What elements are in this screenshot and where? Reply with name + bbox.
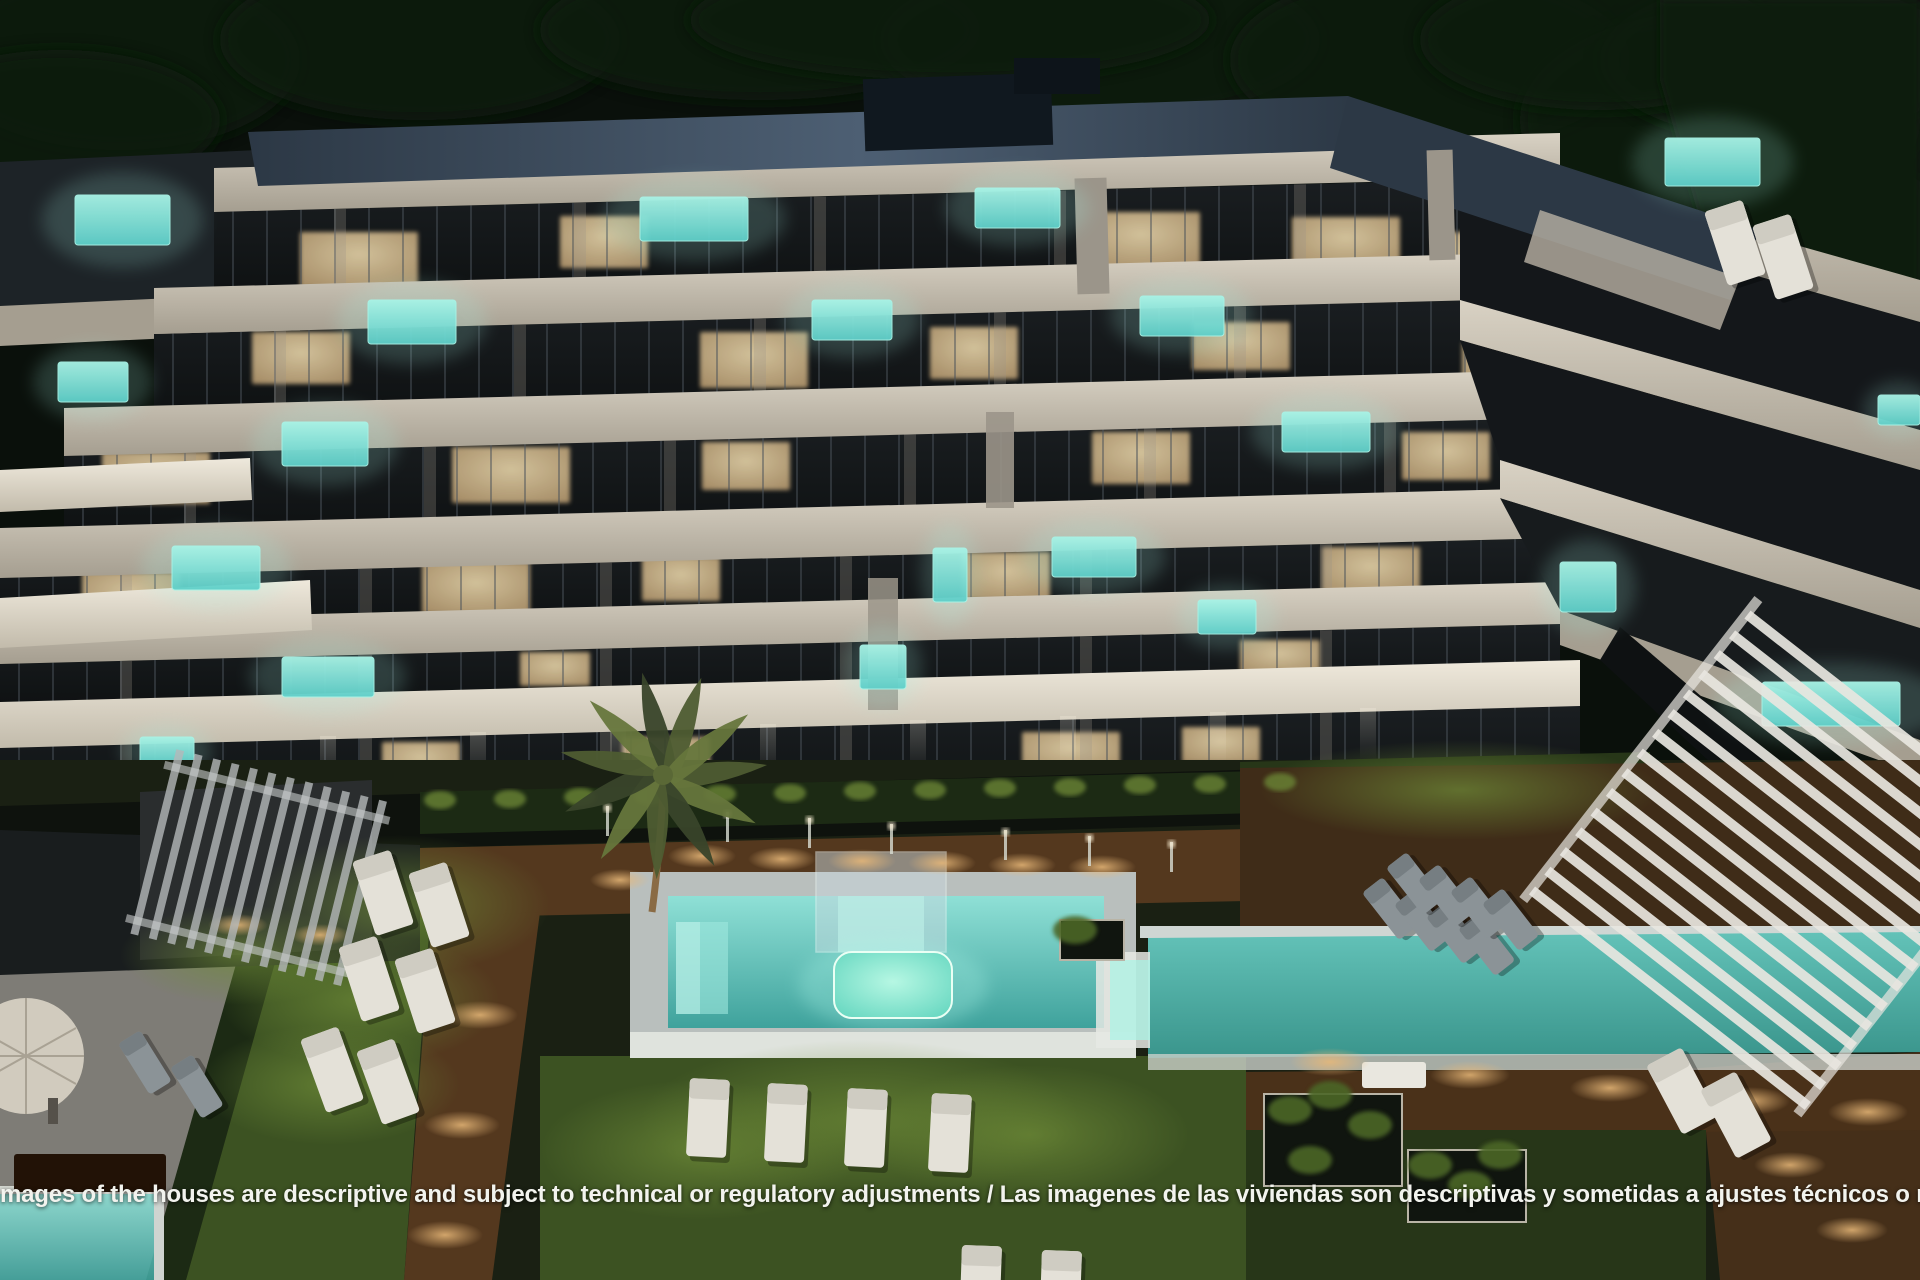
window-mullion: [864, 436, 866, 508]
window-mullion: [266, 211, 268, 287]
window-mullion: [460, 652, 462, 690]
hedge-plant: [844, 782, 876, 800]
window-mullion: [762, 438, 764, 510]
window-mullion: [490, 445, 492, 517]
partition-wall: [1144, 428, 1156, 500]
hedge-plant: [1194, 775, 1226, 793]
sun-lounger: [928, 1093, 976, 1178]
deck-light: [908, 851, 976, 875]
window-mullion: [1310, 630, 1312, 668]
partition-wall: [1294, 184, 1306, 260]
window-mullion: [154, 660, 156, 698]
window-mullion: [460, 566, 462, 610]
window-mullion: [648, 321, 650, 395]
window-mullion: [784, 318, 786, 392]
window-mullion: [1022, 312, 1024, 386]
sun-lounger: [844, 1088, 892, 1173]
hedge-plant: [1054, 778, 1086, 796]
facade-pier: [1427, 150, 1456, 261]
deck-light: [1754, 1152, 1826, 1178]
deck-light: [828, 849, 896, 873]
plunge-pool: [1560, 562, 1616, 612]
partition-wall: [1320, 544, 1332, 588]
deck-light: [290, 924, 350, 946]
window-mullion: [592, 442, 594, 514]
window-mullion: [470, 205, 472, 281]
window-mullion: [1238, 426, 1240, 498]
partition-wall: [514, 325, 526, 399]
window-mullion: [172, 334, 174, 408]
window-mullion: [970, 639, 972, 677]
window-mullion: [1260, 306, 1262, 380]
hedge-plant: [984, 779, 1016, 797]
partition-wall: [120, 661, 132, 699]
window-mullion: [716, 320, 718, 394]
light-post-bulb: [806, 816, 814, 824]
facade-pier: [986, 412, 1014, 508]
lit-window: [520, 652, 590, 686]
planter-plant: [1348, 1111, 1392, 1139]
deck-light: [1828, 1098, 1908, 1126]
window-mullion: [1056, 311, 1058, 385]
window-mullion: [1140, 635, 1142, 673]
jacuzzi: [834, 952, 952, 1018]
architectural-render-page: mages of the houses are descriptive and …: [0, 0, 1920, 1280]
parasol-stand: [48, 1098, 58, 1124]
partition-wall: [574, 203, 586, 279]
planter-plant: [1408, 1151, 1452, 1179]
window-mullion: [596, 563, 598, 607]
window-mullion: [796, 437, 798, 509]
window-mullion: [1208, 547, 1210, 591]
partition-wall: [994, 312, 1006, 386]
window-mullion: [966, 433, 968, 505]
partition-wall: [360, 569, 372, 613]
window-mullion: [1514, 625, 1516, 663]
deck-light: [748, 847, 816, 871]
plunge-pool: [58, 362, 128, 402]
window-mullion: [694, 440, 696, 512]
window-mullion: [308, 330, 310, 404]
lit-window: [642, 557, 720, 601]
window-mullion: [698, 646, 700, 684]
lit-window: [452, 447, 570, 503]
plunge-pool: [1198, 600, 1256, 634]
hedge-plant: [774, 784, 806, 802]
window-mullion: [1034, 431, 1036, 503]
window-mullion: [834, 557, 836, 601]
window-mullion: [630, 648, 632, 686]
disclaimer-text: mages of the houses are descriptive and …: [0, 1180, 1920, 1214]
sun-lounger: [686, 1078, 734, 1163]
deck-light: [1570, 1074, 1650, 1102]
window-mullion: [1174, 634, 1176, 672]
plunge-pool: [75, 195, 170, 245]
window-mullion: [528, 564, 530, 608]
deck-light: [988, 853, 1056, 877]
window-mullion: [422, 447, 424, 519]
window-mullion: [1276, 631, 1278, 669]
window-mullion: [1412, 542, 1414, 586]
window-mullion: [1150, 188, 1152, 264]
lit-window: [300, 232, 418, 288]
window-mullion: [1514, 539, 1516, 583]
window-mullion: [728, 439, 730, 511]
window-mullion: [810, 197, 812, 273]
sun-lounger: [959, 1245, 1006, 1280]
partition-wall: [334, 209, 346, 285]
window-mullion: [698, 560, 700, 604]
deck-light: [1816, 1217, 1888, 1243]
window-mullion: [1396, 302, 1398, 376]
window-mullion: [252, 451, 254, 523]
window-mullion: [1354, 183, 1356, 259]
window-mullion: [766, 558, 768, 602]
planter-plant: [1308, 1081, 1352, 1109]
deck-light: [590, 869, 650, 891]
window-mullion: [1174, 548, 1176, 592]
window-mullion: [1476, 420, 1478, 492]
window-mullion: [1038, 637, 1040, 675]
window-mullion: [614, 322, 616, 396]
window-mullion: [436, 206, 438, 282]
window-mullion: [750, 319, 752, 393]
window-mullion: [426, 567, 428, 611]
window-mullion: [1068, 430, 1070, 502]
facade-downlight: [1210, 712, 1226, 766]
window-mullion: [358, 569, 360, 613]
window-mullion: [222, 658, 224, 696]
plunge-pool: [975, 188, 1060, 228]
window-mullion: [1286, 185, 1288, 261]
planter-plant: [1053, 916, 1097, 944]
window-mullion: [834, 643, 836, 681]
deck-light: [424, 1111, 500, 1139]
window-mullion: [494, 565, 496, 609]
window-mullion: [1106, 636, 1108, 674]
window-mullion: [1136, 429, 1138, 501]
window-mullion: [188, 659, 190, 697]
hedge-plant: [1124, 776, 1156, 794]
window-mullion: [902, 555, 904, 599]
plunge-pool: [640, 197, 748, 241]
plunge-pool: [1282, 412, 1370, 452]
window-mullion: [456, 446, 458, 518]
window-mullion: [1388, 182, 1390, 258]
window-mullion: [660, 441, 662, 513]
plunge-pool: [172, 546, 260, 590]
partition-wall: [1320, 630, 1332, 668]
hedge-plant: [914, 781, 946, 799]
lounger-backrest: [961, 1245, 1002, 1267]
light-post-bulb: [604, 804, 612, 812]
window-mullion: [1446, 627, 1448, 665]
window-mullion: [596, 649, 598, 687]
window-mullion: [232, 212, 234, 288]
window-mullion: [1252, 185, 1254, 261]
lit-window: [252, 332, 350, 384]
partition-wall: [600, 563, 612, 607]
window-mullion: [830, 436, 832, 508]
partition-wall: [600, 649, 612, 687]
window-mullion: [538, 204, 540, 280]
window-mullion: [1378, 543, 1380, 587]
window-mullion: [512, 325, 514, 399]
window-mullion: [912, 194, 914, 270]
window-mullion: [1362, 303, 1364, 377]
lounger-backrest: [689, 1078, 730, 1100]
lap-pool-steps-water: [1110, 960, 1150, 1040]
window-mullion: [52, 663, 54, 701]
window-mullion: [1116, 189, 1118, 265]
window-mullion: [1548, 624, 1550, 662]
deck-light: [407, 1221, 483, 1249]
window-mullion: [800, 558, 802, 602]
window-mullion: [1170, 428, 1172, 500]
window-mullion: [1480, 626, 1482, 664]
roof-box: [1014, 58, 1100, 94]
window-mullion: [426, 653, 428, 691]
window-mullion: [240, 332, 242, 406]
planter-plant: [1288, 1146, 1332, 1174]
window-mullion: [1430, 301, 1432, 375]
lit-window: [422, 562, 530, 614]
lounger-backrest: [931, 1093, 972, 1115]
window-mullion: [572, 203, 574, 279]
window-mullion: [562, 564, 564, 608]
window-mullion: [682, 320, 684, 394]
window-mullion: [206, 333, 208, 407]
partition-wall: [424, 447, 436, 519]
window-mullion: [580, 323, 582, 397]
window-mullion: [932, 434, 934, 506]
window-mullion: [1480, 540, 1482, 584]
window-mullion: [800, 644, 802, 682]
deck-light: [1290, 1048, 1370, 1076]
plunge-pool: [282, 422, 368, 466]
window-mullion: [732, 559, 734, 603]
window-mullion: [920, 314, 922, 388]
pool-steps: [676, 922, 700, 1014]
hedge-plant: [1264, 773, 1296, 791]
deck-light: [1068, 855, 1136, 879]
window-mullion: [558, 443, 560, 515]
window-mullion: [1408, 422, 1410, 494]
partition-wall: [904, 434, 916, 506]
lit-window: [1092, 432, 1190, 484]
palm-crown: [653, 765, 673, 785]
plunge-pool: [1052, 537, 1136, 577]
window-mullion: [1320, 184, 1322, 260]
sun-lounger: [1039, 1250, 1086, 1280]
window-mullion: [1344, 544, 1346, 588]
window-mullion: [1242, 546, 1244, 590]
window-mullion: [1090, 310, 1092, 384]
light-post-bulb: [1086, 834, 1094, 842]
partition-wall: [1080, 636, 1092, 674]
window-mullion: [528, 650, 530, 688]
lounger-backrest: [767, 1083, 808, 1105]
window-mullion: [1102, 429, 1104, 501]
window-mullion: [1204, 427, 1206, 499]
window-mullion: [664, 561, 666, 605]
window-mullion: [402, 207, 404, 283]
window-mullion: [1412, 628, 1414, 666]
window-mullion: [18, 664, 20, 702]
plunge-pool: [368, 300, 456, 344]
window-mullion: [392, 568, 394, 612]
plunge-pool: [812, 300, 892, 340]
light-post-bulb: [1002, 828, 1010, 836]
window-mullion: [878, 195, 880, 271]
window-mullion: [626, 442, 628, 514]
plunge-pool: [1878, 395, 1920, 425]
window-mullion: [732, 645, 734, 683]
plunge-pool: [1140, 296, 1224, 336]
window-mullion: [1004, 552, 1006, 596]
window-mullion: [954, 314, 956, 388]
partition-wall: [754, 319, 766, 393]
planter-plant: [1268, 1096, 1312, 1124]
window-mullion: [342, 329, 344, 403]
plunge-pool: [282, 657, 374, 697]
window-mullion: [664, 647, 666, 685]
window-mullion: [504, 205, 506, 281]
window-mullion: [766, 644, 768, 682]
window-mullion: [1072, 637, 1074, 675]
plunge-pool: [933, 548, 967, 602]
window-mullion: [1218, 186, 1220, 262]
planter-plant: [1478, 1141, 1522, 1169]
window-mullion: [562, 650, 564, 688]
window-mullion: [1004, 638, 1006, 676]
lit-window: [702, 442, 790, 490]
partition-wall: [664, 441, 676, 513]
window-mullion: [1276, 545, 1278, 589]
window-mullion: [1294, 305, 1296, 379]
window-mullion: [1344, 630, 1346, 668]
light-post-bulb: [888, 822, 896, 830]
window-mullion: [368, 208, 370, 284]
window-mullion: [86, 662, 88, 700]
hedge-plant: [494, 790, 526, 808]
night-aerial-render: [0, 0, 1920, 1280]
window-mullion: [1184, 187, 1186, 263]
window-mullion: [1328, 304, 1330, 378]
window-mullion: [494, 651, 496, 689]
lawn-glow: [1260, 740, 1660, 840]
window-mullion: [300, 210, 302, 286]
window-mullion: [1442, 421, 1444, 493]
window-mullion: [1310, 544, 1312, 588]
window-mullion: [988, 313, 990, 387]
window-mullion: [1446, 541, 1448, 585]
window-mullion: [844, 196, 846, 272]
window-mullion: [630, 562, 632, 606]
partition-wall: [274, 331, 286, 405]
window-mullion: [546, 324, 548, 398]
plunge-pool: [1665, 138, 1760, 186]
pool-bench: [1362, 1062, 1426, 1088]
window-mullion: [1378, 629, 1380, 667]
deck-light: [1430, 1061, 1510, 1089]
partition-wall: [814, 197, 826, 273]
light-post-bulb: [1168, 840, 1176, 848]
partition-wall: [840, 556, 852, 600]
window-mullion: [324, 570, 326, 614]
lounger-backrest: [847, 1088, 888, 1110]
window-mullion: [936, 640, 938, 678]
sun-lounger: [764, 1083, 812, 1168]
window-mullion: [898, 435, 900, 507]
lounger-backrest: [1041, 1250, 1082, 1272]
plunge-pool: [860, 645, 906, 689]
hedge-plant: [424, 791, 456, 809]
window-mullion: [524, 444, 526, 516]
